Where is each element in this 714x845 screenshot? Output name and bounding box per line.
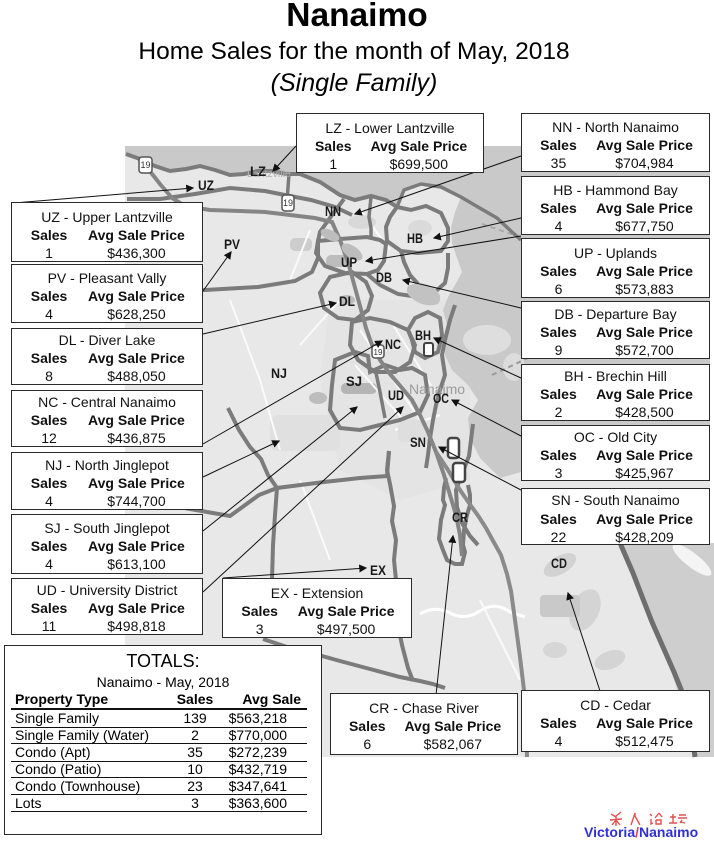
svg-text:19: 19 bbox=[140, 160, 150, 170]
svg-text:CR: CR bbox=[452, 509, 468, 525]
svg-text:NN: NN bbox=[325, 203, 341, 219]
svg-text:CD: CD bbox=[551, 555, 567, 571]
svg-text:LZ: LZ bbox=[250, 163, 266, 179]
svg-text:UD: UD bbox=[388, 387, 404, 403]
svg-text:DL: DL bbox=[339, 293, 355, 309]
svg-text:19: 19 bbox=[283, 198, 293, 208]
svg-text:OC: OC bbox=[433, 390, 449, 406]
svg-text:PV: PV bbox=[224, 236, 241, 252]
svg-text:SN: SN bbox=[410, 434, 426, 450]
svg-text:HB: HB bbox=[407, 230, 423, 246]
svg-text:EX: EX bbox=[370, 562, 387, 578]
svg-text:UP: UP bbox=[341, 254, 357, 270]
svg-text:NC: NC bbox=[385, 336, 401, 352]
svg-text:BH: BH bbox=[415, 327, 431, 343]
svg-text:19: 19 bbox=[374, 348, 383, 357]
svg-text:SJ: SJ bbox=[346, 373, 362, 389]
svg-text:DB: DB bbox=[376, 269, 392, 285]
svg-text:NJ: NJ bbox=[271, 365, 287, 381]
svg-text:UZ: UZ bbox=[198, 177, 214, 193]
